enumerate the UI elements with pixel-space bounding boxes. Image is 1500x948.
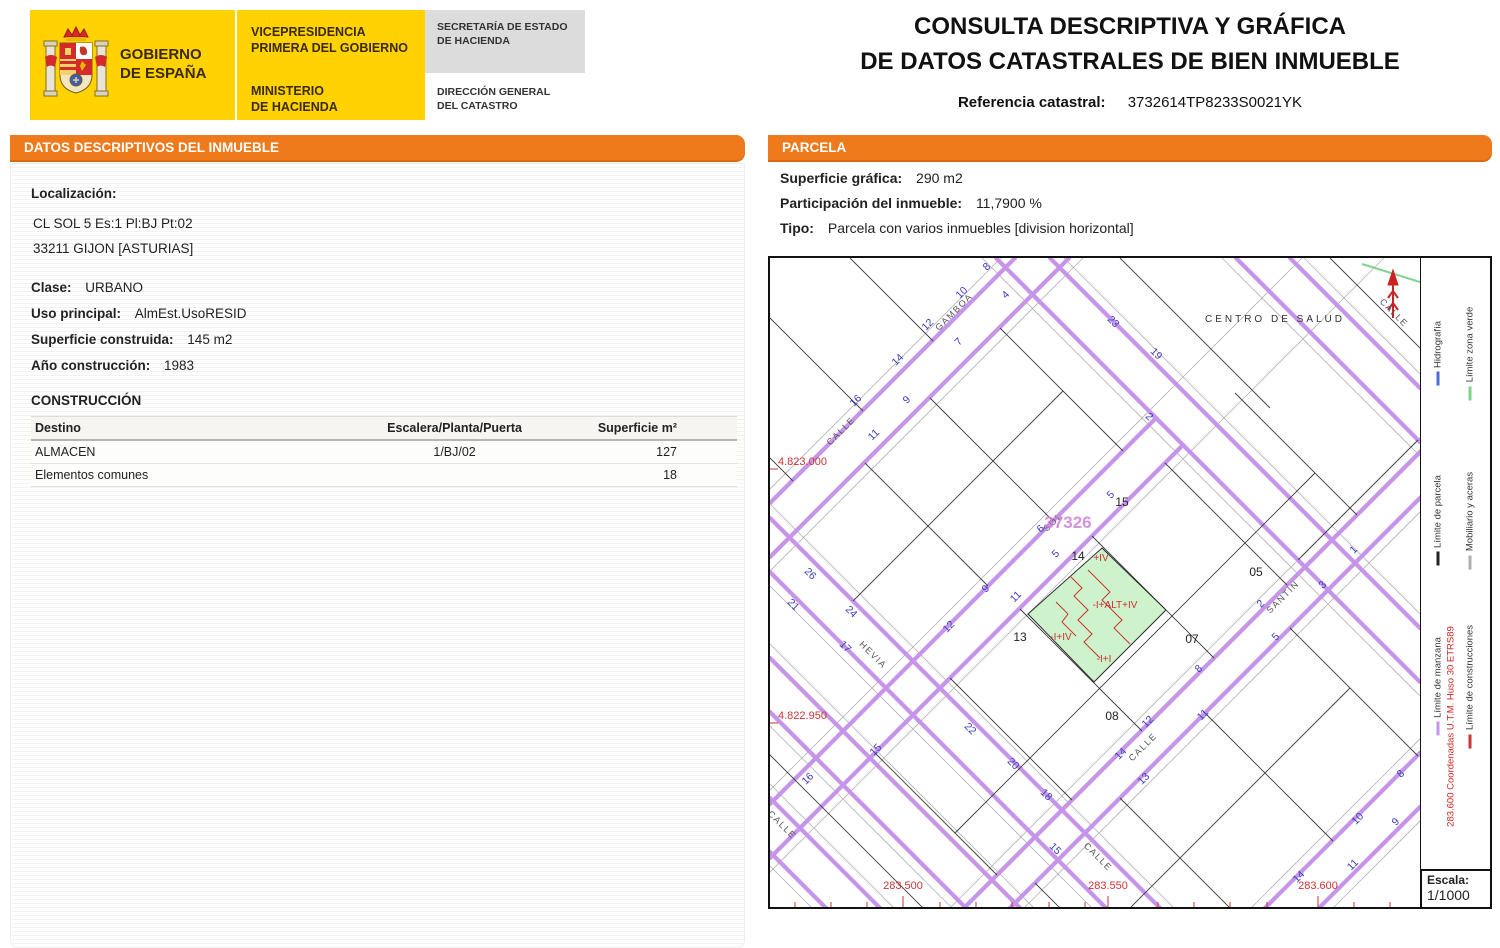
field-superficie-construida: Superficie construida: 145 m2 — [31, 332, 730, 347]
legend-label: Límite de parcela — [1433, 475, 1444, 548]
secretaria-block: SECRETARÍA DE ESTADO DE HACIENDA DIRECCI… — [425, 10, 585, 120]
parcela-info: Superficie gráfica: 290 m2 Participación… — [780, 170, 1480, 245]
parcel-number: 08 — [1105, 709, 1119, 723]
manzana-number: 37326 — [1044, 513, 1091, 532]
construccion-title: CONSTRUCCIÓN — [31, 393, 730, 408]
legend-swatch — [1469, 734, 1472, 748]
table-header-superficie: Superficie m² — [568, 416, 737, 440]
legend-label: Límite de construcciones — [1465, 625, 1476, 730]
street-number: 5 — [1050, 547, 1063, 560]
legend-item: Límite zona verde — [1464, 269, 1477, 439]
legend-item: Límite de construcciones — [1464, 602, 1477, 772]
utm-coordinate-label: 4.822.950 — [778, 710, 827, 722]
construction-label: -I+ALT+IV — [1093, 600, 1138, 611]
street-number: 1 — [1348, 543, 1361, 556]
spain-coat-of-arms: GOBIERNO DE ESPAÑA — [30, 10, 235, 120]
datos-descriptivos-panel: Localización: CL SOL 5 Es:1 Pl:BJ Pt:02 … — [10, 163, 745, 948]
utm-coordinates-note: 283.600 Coordenadas U.T.M. Huso 30 ETRS8… — [1445, 577, 1458, 877]
legend-item: Límite de manzana — [1432, 602, 1445, 772]
map-legend: HidrografíaLímite zona verdeLímite de pa… — [1420, 258, 1490, 871]
street-number: 11 — [866, 427, 882, 443]
legend-item: Mobiliario y aceras — [1464, 436, 1477, 606]
legend-label: Límite de manzana — [1433, 637, 1444, 718]
parcel-number: 15 — [1115, 495, 1129, 509]
street-number: 26 — [802, 566, 819, 583]
referencia-catastral: Referencia catastral: 3732614TP8233S0021… — [768, 94, 1492, 111]
street-name: GAMBOA — [933, 291, 974, 332]
legend-item: Límite de parcela — [1432, 436, 1445, 606]
legend-label: Hidrografía — [1433, 321, 1444, 368]
legend-label: Mobiliario y aceras — [1465, 472, 1476, 551]
street-number: 7 — [953, 335, 966, 348]
localizacion-label: Localización: — [31, 186, 117, 201]
table-row: ALMACEN 1/BJ/02 127 — [31, 440, 737, 464]
legend-swatch — [1437, 722, 1440, 736]
ministerio-block: VICEPRESIDENCIA PRIMERA DEL GOBIERNO MIN… — [235, 10, 425, 120]
field-ano-construccion: Año construcción: 1983 — [31, 358, 730, 373]
table-header-escalera: Escalera/Planta/Puerta — [342, 416, 568, 440]
section-header-parcela: PARCELA — [768, 135, 1492, 160]
parcel-number: 13 — [1013, 630, 1027, 644]
legend-item: Hidrografía — [1432, 269, 1445, 439]
address-line-2: 33211 GIJON [ASTURIAS] — [33, 237, 730, 262]
legend-swatch — [1469, 386, 1472, 400]
street-number: 9 — [901, 393, 914, 406]
street-number: 14 — [890, 351, 907, 368]
street-name: CALLE — [1378, 297, 1411, 330]
escala-label: Escala: — [1427, 873, 1490, 887]
cadastral-map[interactable]: 1614121081197423192691216551115262421172… — [768, 256, 1492, 909]
parcel-number: 05 — [1249, 565, 1263, 579]
street-number: 16 — [848, 392, 865, 409]
field-participacion: Participación del inmueble: 11,7900 % — [780, 195, 1480, 211]
utm-coordinate-label: 283.500 — [883, 880, 923, 892]
field-superficie-grafica: Superficie gráfica: 290 m2 — [780, 170, 1480, 186]
document-title: CONSULTA DESCRIPTIVA Y GRÁFICA DE DATOS … — [768, 10, 1492, 80]
street-number: 13 — [1136, 770, 1153, 787]
street-name: CALLE — [1127, 731, 1160, 764]
street-name: SANTÍN — [1264, 578, 1301, 615]
field-clase: Clase: URBANO — [31, 280, 730, 295]
field-uso-principal: Uso principal: AlmEst.UsoRESID — [31, 306, 730, 321]
table-header-destino: Destino — [31, 416, 342, 440]
escala-value: 1/1000 — [1427, 887, 1490, 903]
parcel-number: 14 — [1071, 549, 1085, 563]
construccion-table: Destino Escalera/Planta/Puerta Superfici… — [31, 416, 737, 487]
section-header-datos-descriptivos: DATOS DESCRIPTIVOS DEL INMUEBLE — [10, 135, 745, 160]
centro-de-salud-label: CENTRO DE SALUD — [1205, 314, 1345, 325]
utm-coordinate-label: 4.823.000 — [778, 456, 827, 468]
street-number: 4 — [1000, 288, 1013, 301]
gobierno-espana-label: GOBIERNO DE ESPAÑA — [120, 46, 206, 84]
street-name: CALLE — [825, 415, 858, 448]
scale-box: Escala: 1/1000 — [1420, 869, 1490, 907]
construction-label: -I+I — [1097, 654, 1112, 665]
legend-swatch — [1437, 372, 1440, 386]
street-number: 11 — [1008, 589, 1024, 605]
coat-of-arms-icon — [42, 23, 110, 107]
table-row: Elementos comunes 18 — [31, 463, 737, 486]
parcel-number: 07 — [1185, 632, 1199, 646]
grid-ticks — [770, 469, 1390, 907]
legend-swatch — [1437, 552, 1440, 566]
referencia-value: 3732614TP8233S0021YK — [1128, 94, 1302, 111]
address-line-1: CL SOL 5 Es:1 Pl:BJ Pt:02 — [33, 212, 730, 237]
cadastral-map-canvas: 1614121081197423192691216551115262421172… — [770, 258, 1420, 907]
government-logo: GOBIERNO DE ESPAÑA VICEPRESIDENCIA PRIME… — [30, 10, 585, 120]
field-tipo: Tipo: Parcela con varios inmuebles [divi… — [780, 220, 1480, 236]
localizacion-address: CL SOL 5 Es:1 Pl:BJ Pt:02 33211 GIJON [A… — [33, 212, 730, 262]
construction-label: +IV — [1093, 553, 1109, 564]
utm-coordinate-label: 283.550 — [1088, 880, 1128, 892]
legend-label: Límite zona verde — [1465, 307, 1476, 383]
street-number: 10 — [1350, 810, 1367, 827]
legend-swatch — [1469, 555, 1472, 569]
construction-label: -I+IV — [1050, 632, 1072, 643]
referencia-label: Referencia catastral: — [958, 94, 1106, 111]
utm-coordinate-label: 283.600 — [1298, 880, 1338, 892]
